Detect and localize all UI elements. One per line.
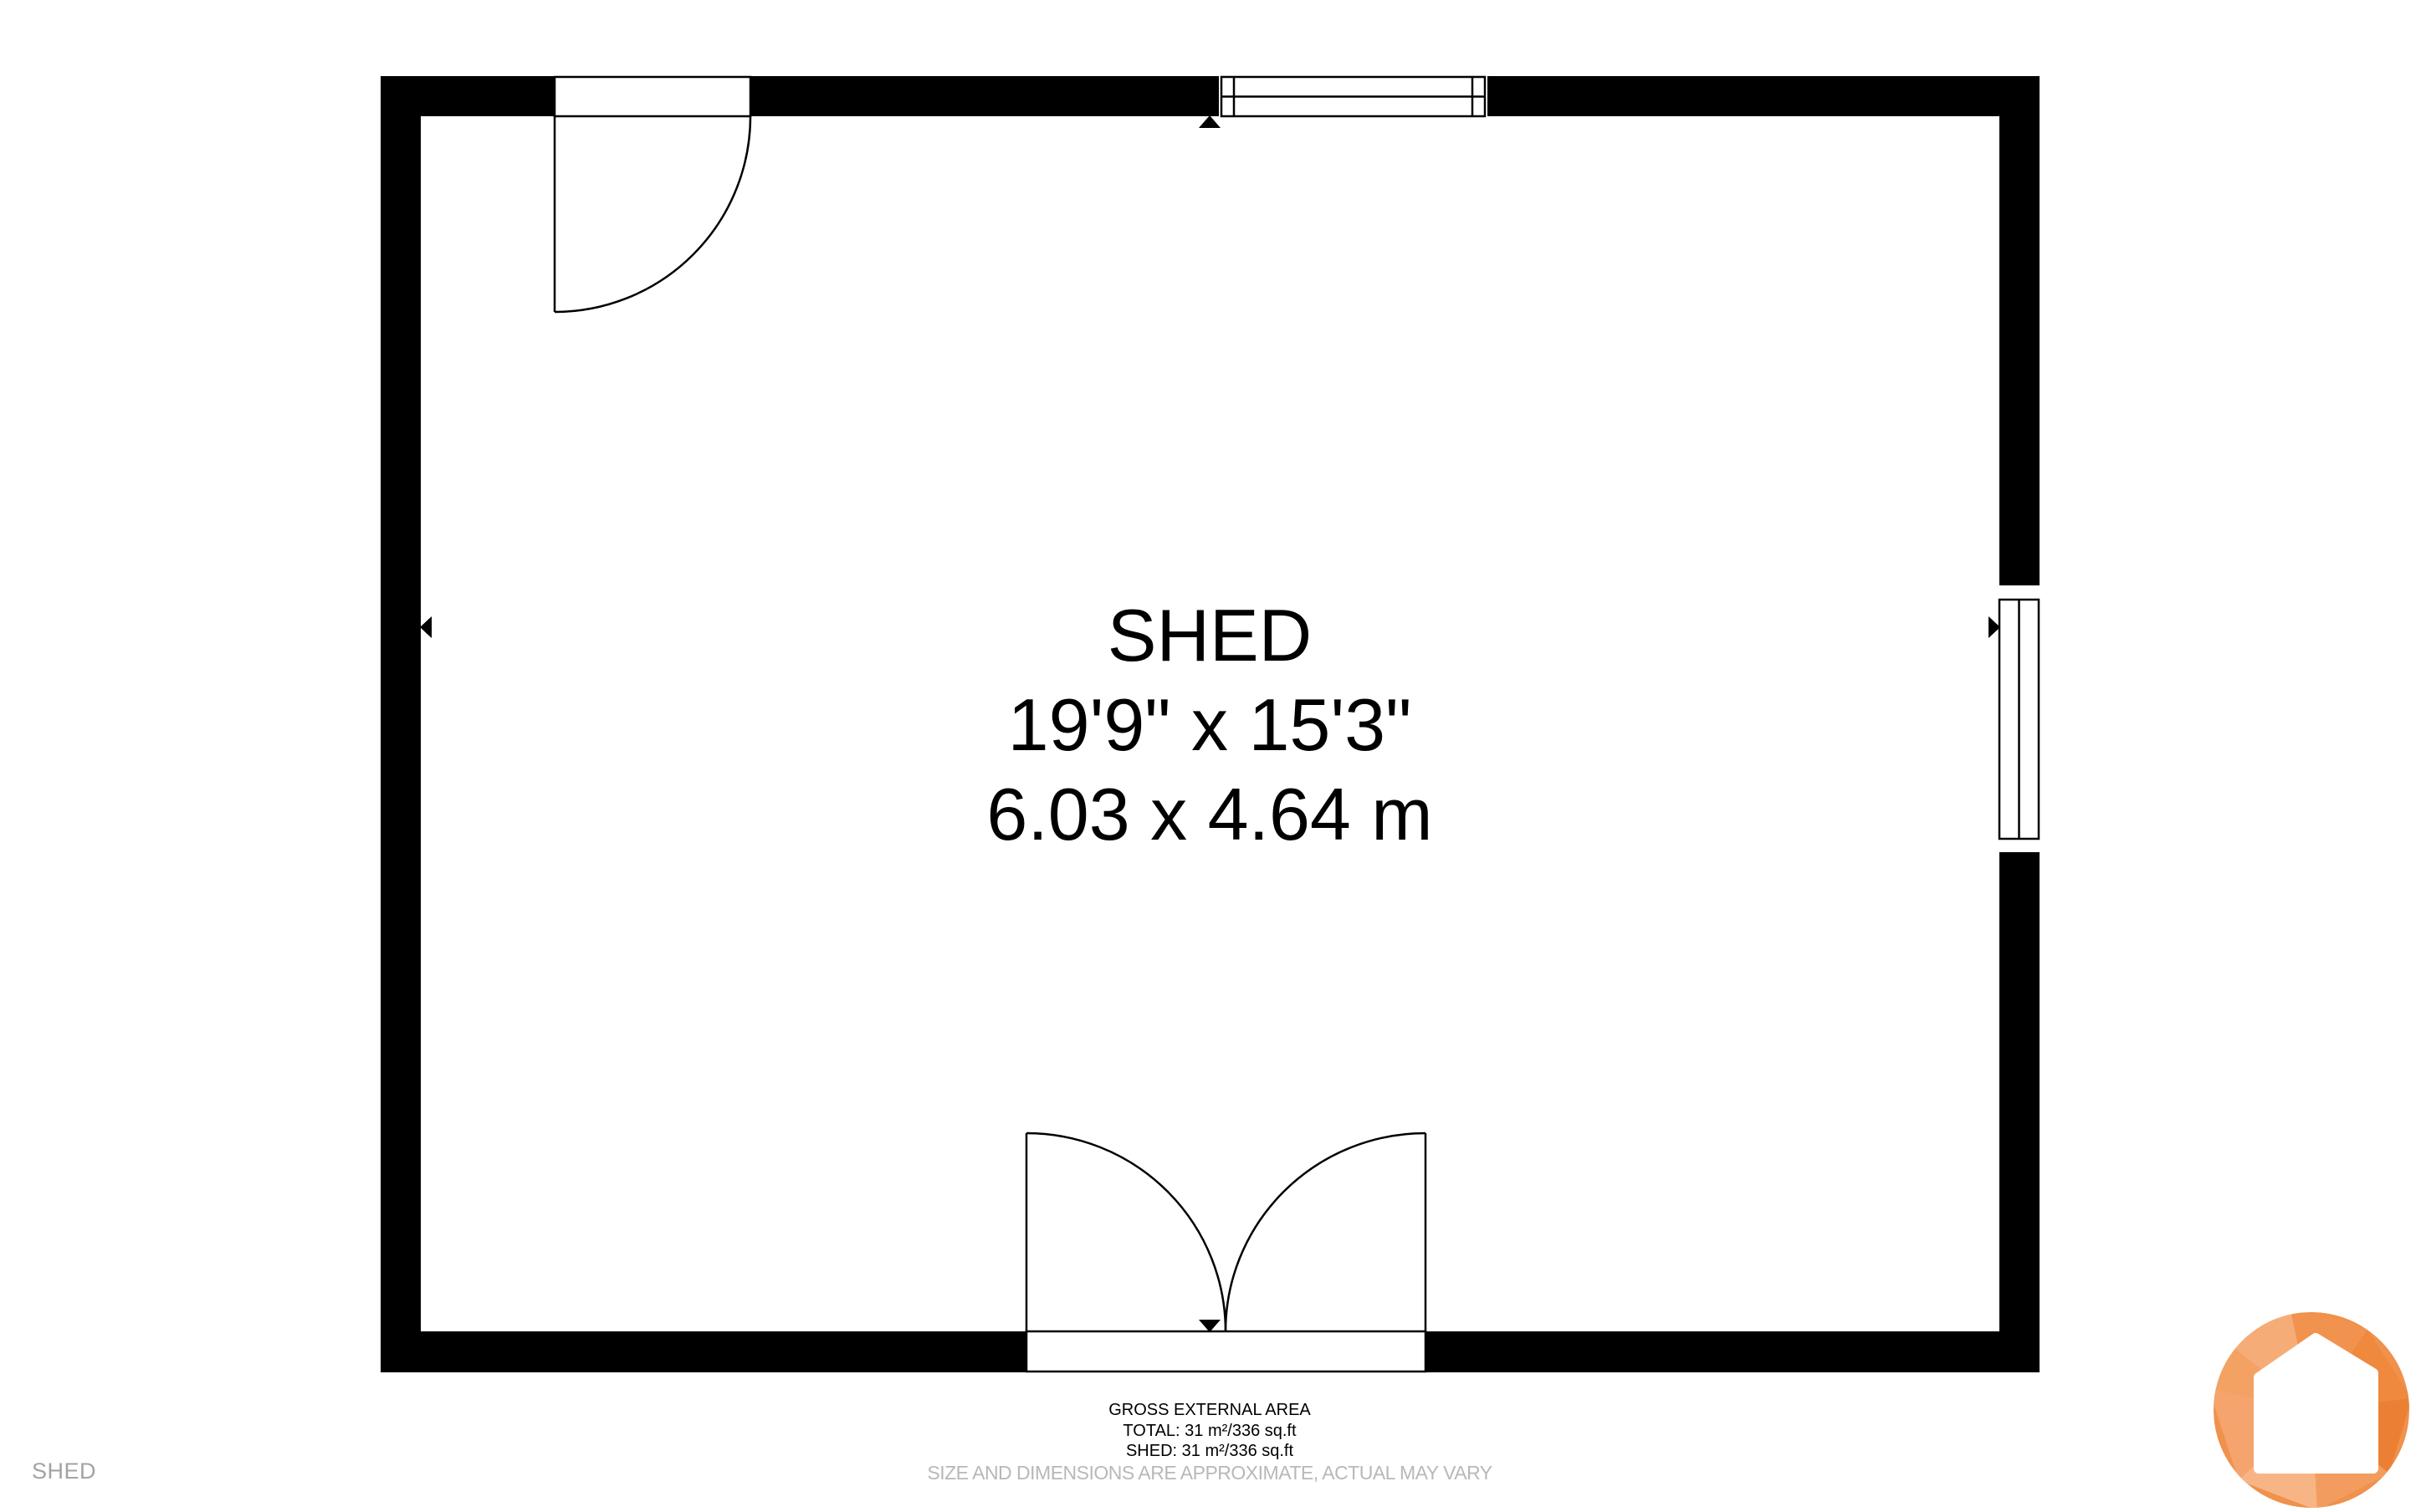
window-top: [1219, 75, 1487, 117]
window-right: [1999, 585, 2040, 852]
marker-up-icon: [1199, 115, 1221, 128]
house-logo-icon: [2209, 1310, 2412, 1510]
area-total: TOTAL: 31 m²/336 sq.ft: [927, 1421, 1492, 1442]
entrance-door-top: [555, 74, 750, 312]
door-swing-arc-right: [1226, 1133, 1425, 1331]
area-shed: SHED: 31 m²/336 sq.ft: [927, 1441, 1492, 1462]
marker-left-icon: [420, 616, 432, 638]
disclaimer-text: SIZE AND DIMENSIONS ARE APPROXIMATE, ACT…: [927, 1462, 1492, 1484]
door-swing-arc: [555, 116, 750, 312]
room-label: SHED 19'9" x 15'3" 6.03 x 4.64 m: [986, 590, 1432, 859]
corner-room-watermark: SHED: [32, 1458, 96, 1484]
double-door-bottom: [1026, 1133, 1425, 1374]
room-name: SHED: [986, 590, 1432, 680]
room-dimensions-imperial: 19'9" x 15'3": [986, 680, 1432, 769]
floorplan-page: { "plan": { "room_label": { "name": "SHE…: [0, 0, 2421, 1512]
area-title: GROSS EXTERNAL AREA: [927, 1400, 1492, 1421]
room-dimensions-metric: 6.03 x 4.64 m: [986, 769, 1432, 859]
area-summary: GROSS EXTERNAL AREA TOTAL: 31 m²/336 sq.…: [927, 1400, 1492, 1484]
door-swing-arc-left: [1026, 1133, 1226, 1331]
